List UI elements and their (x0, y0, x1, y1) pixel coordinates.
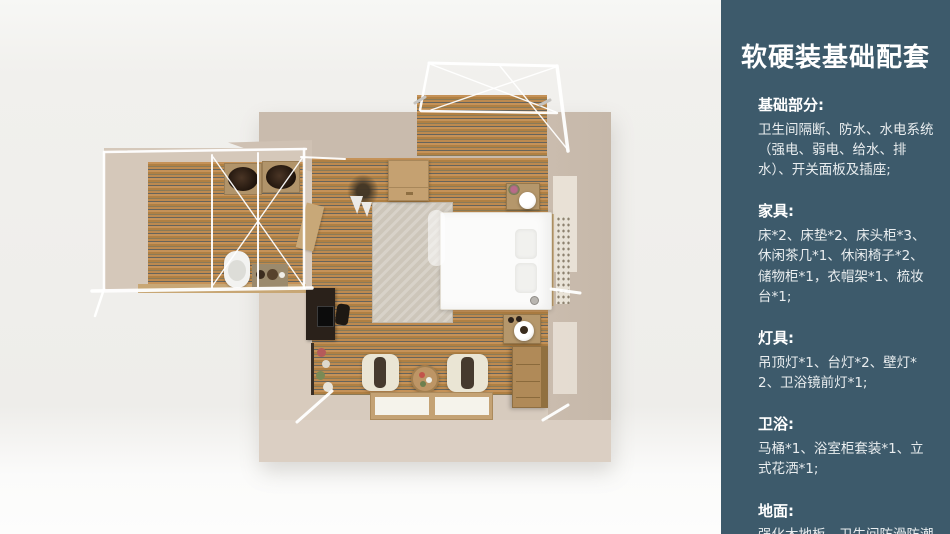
flower (317, 348, 326, 357)
headboard-panel (556, 216, 570, 304)
basin (262, 161, 300, 193)
info-sidebar: 软硬装基础配套 基础部分: 卫生间隔断、防水、水电系统（强电、弱电、给水、排水）… (721, 0, 950, 534)
pillow (515, 229, 537, 259)
section-heading: 卫浴: (758, 414, 936, 436)
slide: 软硬装基础配套 基础部分: 卫生间隔断、防水、水电系统（强电、弱电、给水、排水）… (0, 0, 950, 534)
sheer-curtain (428, 210, 445, 266)
table-lamp (514, 321, 534, 341)
drawer-line (516, 364, 540, 365)
section-heading: 地面: (758, 501, 936, 523)
flower (316, 371, 325, 380)
section-furniture: 家具: 床*2、床垫*2、床头柜*3、休闲茶几*1、休闲椅子*2、储物柜*1，衣… (758, 201, 936, 307)
section-bathroom: 卫浴: 马桶*1、浴室柜套装*1、立式花洒*1; (758, 414, 936, 479)
washstand (252, 264, 288, 290)
vanity-mirror (317, 306, 334, 327)
section-basics: 基础部分: 卫生间隔断、防水、水电系统（强电、弱电、给水、排水）、开关面板及插座… (758, 95, 936, 181)
section-body: 马桶*1、浴室柜套装*1、立式花洒*1; (758, 439, 936, 480)
toilet-bowl (228, 260, 246, 281)
wall-panel (553, 322, 577, 394)
flower-pot (508, 184, 520, 195)
flower (420, 381, 426, 387)
decor-item (508, 317, 514, 323)
top-deck-floor (417, 95, 547, 156)
basin (224, 163, 262, 195)
basin-bowl (228, 167, 258, 191)
chair-cushion (374, 357, 386, 389)
flower (419, 372, 425, 378)
flower (322, 360, 330, 368)
floorplan-render (0, 0, 721, 534)
washstand-item (256, 270, 265, 279)
flower (323, 382, 333, 392)
floor-mats (370, 392, 493, 420)
section-heading: 基础部分: (758, 95, 936, 117)
wall-bottom (259, 420, 611, 462)
pillow (515, 263, 537, 293)
section-body: 吊顶灯*1、台灯*2、壁灯*2、卫浴镜前灯*1; (758, 353, 936, 394)
dresser (512, 346, 548, 408)
section-body: 卫生间隔断、防水、水电系统（强电、弱电、给水、排水）、开关面板及插座; (758, 120, 936, 181)
vanity-desk (306, 288, 335, 340)
tea-table (411, 365, 439, 393)
drawer-line (516, 381, 540, 382)
storage-cabinet (388, 160, 429, 201)
section-body: 床*2、床垫*2、床头柜*3、休闲茶几*1、休闲椅子*2、储物柜*1，衣帽架*1… (758, 226, 936, 307)
drawer-line (516, 397, 540, 398)
washstand-item (267, 269, 278, 280)
section-body: 强化木地板、卫生间防滑防潮石塑板; (758, 525, 936, 534)
section-heading: 灯具: (758, 328, 936, 350)
wall-lamp (530, 296, 539, 305)
section-lighting: 灯具: 吊顶灯*1、台灯*2、壁灯*2、卫浴镜前灯*1; (758, 328, 936, 393)
sidebar-title: 软硬装基础配套 (741, 44, 940, 74)
basin-bowl (266, 165, 296, 189)
flower (426, 377, 432, 383)
table-lamp (519, 192, 536, 209)
section-flooring: 地面: 强化木地板、卫生间防滑防潮石塑板; (758, 501, 936, 534)
washstand-item (279, 272, 285, 278)
lounge-chair (362, 354, 399, 391)
chair-cushion (461, 357, 474, 390)
flower-shelf (311, 343, 340, 395)
section-heading: 家具: (758, 201, 936, 223)
lounge-chair (447, 354, 488, 392)
toilet (224, 251, 250, 288)
